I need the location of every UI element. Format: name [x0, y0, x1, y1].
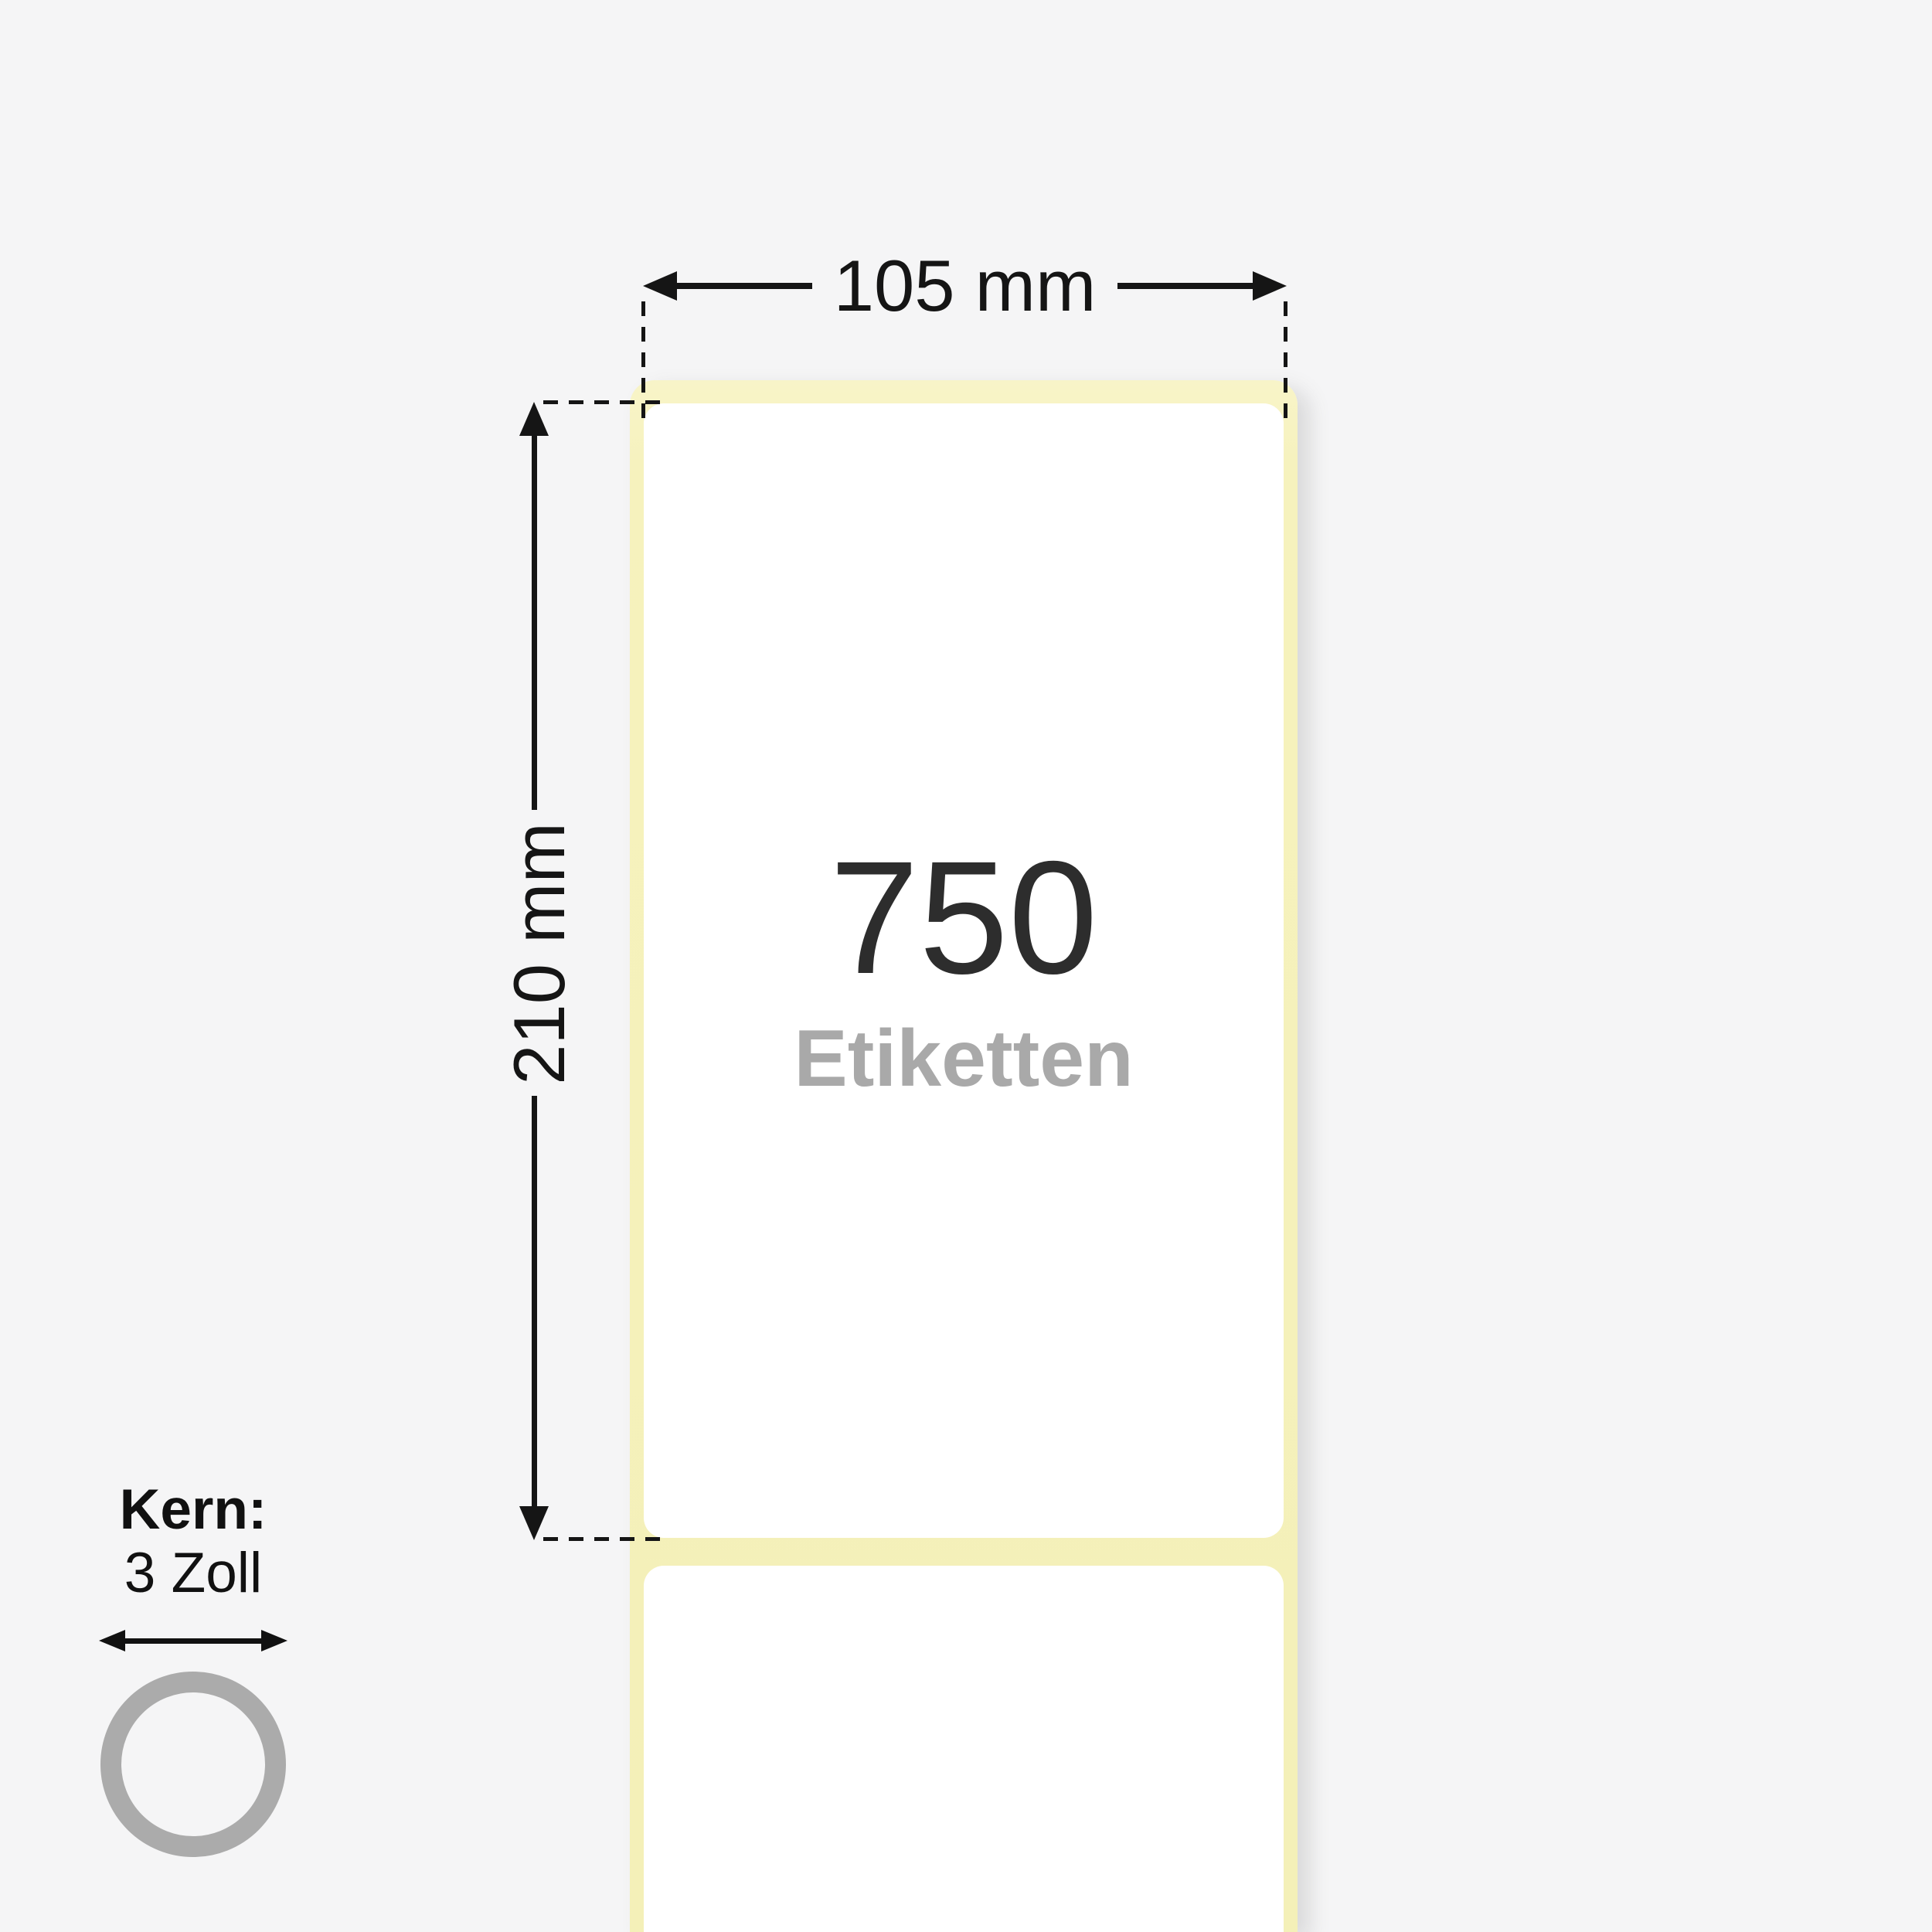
- width-dimension-value: 105 mm: [812, 244, 1118, 328]
- arrow-right-icon: [1253, 271, 1287, 301]
- arrow-up-icon: [519, 402, 549, 436]
- core-diameter-arrow: [99, 1627, 287, 1655]
- core-value: 3 Zoll: [62, 1542, 325, 1605]
- arrow-left-icon: [643, 271, 677, 301]
- label-top: 750 Etiketten: [644, 403, 1284, 1538]
- arrow-right-icon: [261, 1630, 287, 1651]
- dashed-projection-left: [641, 301, 645, 427]
- label-bottom-partial: [644, 1566, 1284, 1932]
- dimension-line-left: [677, 283, 812, 289]
- dimension-line-right: [1117, 283, 1253, 289]
- width-dimension: 105 mm: [643, 244, 1287, 328]
- height-dimension-line-upper: [532, 433, 537, 810]
- core-ring-icon: [100, 1672, 286, 1857]
- dashed-projection-top: [543, 400, 669, 404]
- dashed-projection-right: [1284, 301, 1287, 427]
- core-label: Kern:: [62, 1478, 325, 1542]
- label-count: 750: [644, 838, 1284, 998]
- arrow-left-icon: [99, 1630, 125, 1651]
- label-roll-diagram: 750 Etiketten 105 mm 210 mm Kern: 3 Zoll: [0, 0, 1932, 1932]
- height-dimension-value: 210 mm: [498, 791, 572, 1116]
- arrow-down-icon: [519, 1506, 549, 1540]
- height-dimension-line-lower: [532, 1096, 537, 1507]
- label-roll-liner: 750 Etiketten: [630, 380, 1298, 1932]
- label-count-caption: Etiketten: [644, 1019, 1284, 1099]
- core-caption: Kern: 3 Zoll: [62, 1478, 325, 1605]
- dashed-projection-bottom: [543, 1537, 669, 1541]
- core-diameter-line: [125, 1638, 261, 1644]
